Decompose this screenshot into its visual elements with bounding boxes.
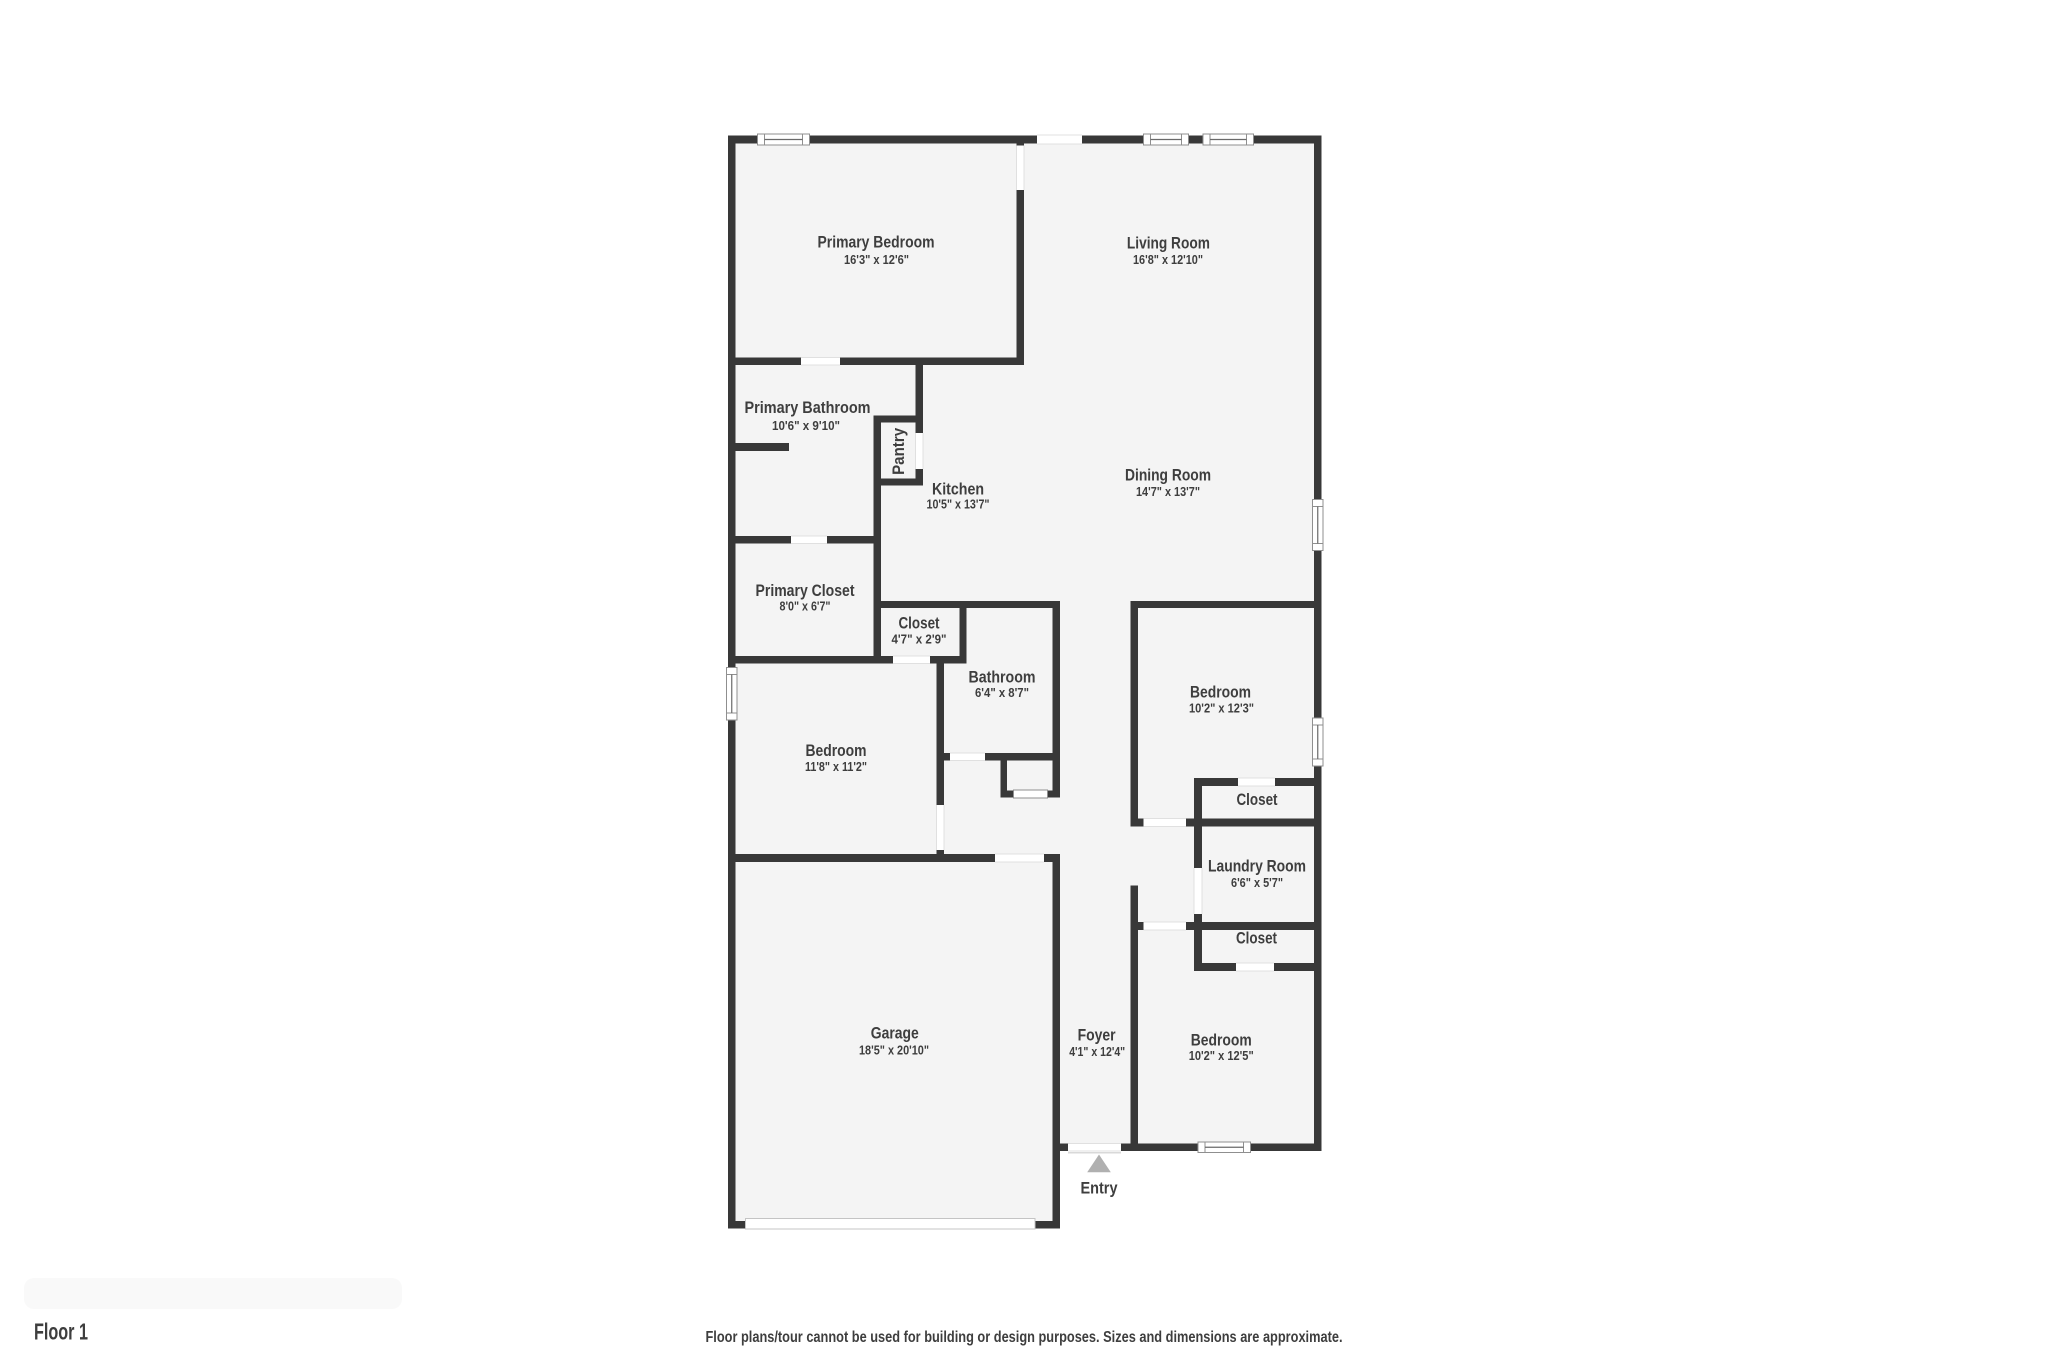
svg-text:6'4" x 8'7": 6'4" x 8'7"	[975, 685, 1029, 700]
svg-text:Foyer: Foyer	[1078, 1026, 1116, 1044]
svg-text:10'2" x 12'3": 10'2" x 12'3"	[1189, 701, 1254, 716]
svg-text:6'6" x 5'7": 6'6" x 5'7"	[1231, 875, 1283, 890]
svg-text:Laundry Room: Laundry Room	[1208, 858, 1306, 876]
svg-text:Bedroom: Bedroom	[1191, 1032, 1252, 1050]
svg-text:Primary Bedroom: Primary Bedroom	[818, 233, 935, 251]
svg-text:Bedroom: Bedroom	[1190, 683, 1251, 701]
svg-text:14'7" x 13'7": 14'7" x 13'7"	[1136, 484, 1200, 499]
svg-text:Bedroom: Bedroom	[806, 742, 867, 760]
svg-text:16'3" x 12'6": 16'3" x 12'6"	[844, 252, 909, 267]
svg-text:18'5" x 20'10": 18'5" x 20'10"	[859, 1043, 929, 1058]
svg-text:Closet: Closet	[1236, 930, 1277, 948]
svg-text:10'2" x 12'5": 10'2" x 12'5"	[1189, 1048, 1254, 1063]
svg-text:Closet: Closet	[1237, 791, 1278, 809]
svg-text:Pantry: Pantry	[890, 427, 908, 475]
svg-text:Primary Closet: Primary Closet	[756, 582, 855, 600]
svg-text:16'8" x 12'10": 16'8" x 12'10"	[1133, 252, 1203, 267]
svg-text:Living Room: Living Room	[1127, 234, 1210, 252]
svg-text:11'8" x 11'2": 11'8" x 11'2"	[805, 759, 867, 774]
svg-text:Floor plans/tour cannot be use: Floor plans/tour cannot be used for buil…	[706, 1329, 1343, 1346]
svg-text:8'0" x 6'7": 8'0" x 6'7"	[780, 598, 831, 613]
svg-text:10'5" x 13'7": 10'5" x 13'7"	[927, 497, 990, 512]
svg-text:Bathroom: Bathroom	[969, 669, 1036, 687]
svg-text:4'1" x 12'4": 4'1" x 12'4"	[1069, 1044, 1125, 1059]
svg-text:Garage: Garage	[871, 1025, 919, 1043]
svg-text:4'7" x 2'9": 4'7" x 2'9"	[892, 632, 947, 647]
svg-text:Dining Room: Dining Room	[1125, 466, 1211, 484]
svg-text:Primary Bathroom: Primary Bathroom	[745, 399, 871, 417]
svg-text:Floor 1: Floor 1	[34, 1319, 88, 1345]
svg-text:10'6" x 9'10": 10'6" x 9'10"	[772, 418, 840, 433]
svg-text:Closet: Closet	[899, 615, 940, 633]
svg-text:Entry: Entry	[1081, 1179, 1119, 1197]
